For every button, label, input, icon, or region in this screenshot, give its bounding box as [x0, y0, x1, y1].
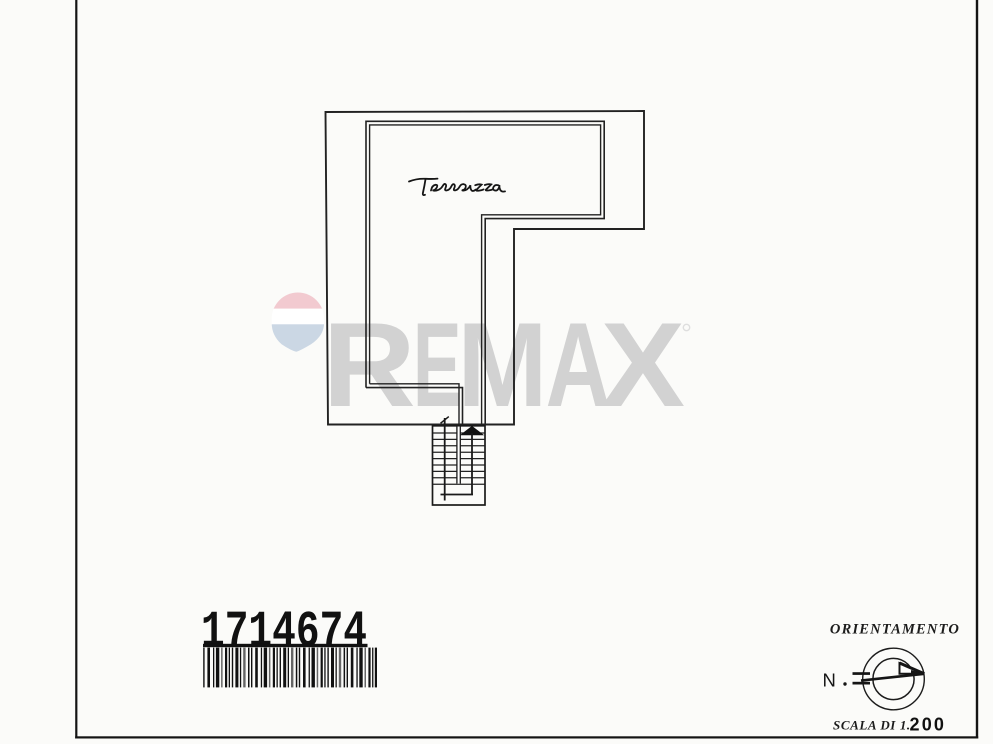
- svg-text:M: M: [457, 299, 547, 432]
- svg-text:200: 200: [910, 715, 947, 735]
- svg-text:N: N: [823, 670, 836, 691]
- svg-text:E: E: [413, 298, 462, 432]
- svg-text:X: X: [601, 298, 685, 432]
- svg-text:SCALA DI 1.: SCALA DI 1.: [833, 718, 911, 733]
- svg-text:ORIENTAMENTO: ORIENTAMENTO: [830, 622, 960, 638]
